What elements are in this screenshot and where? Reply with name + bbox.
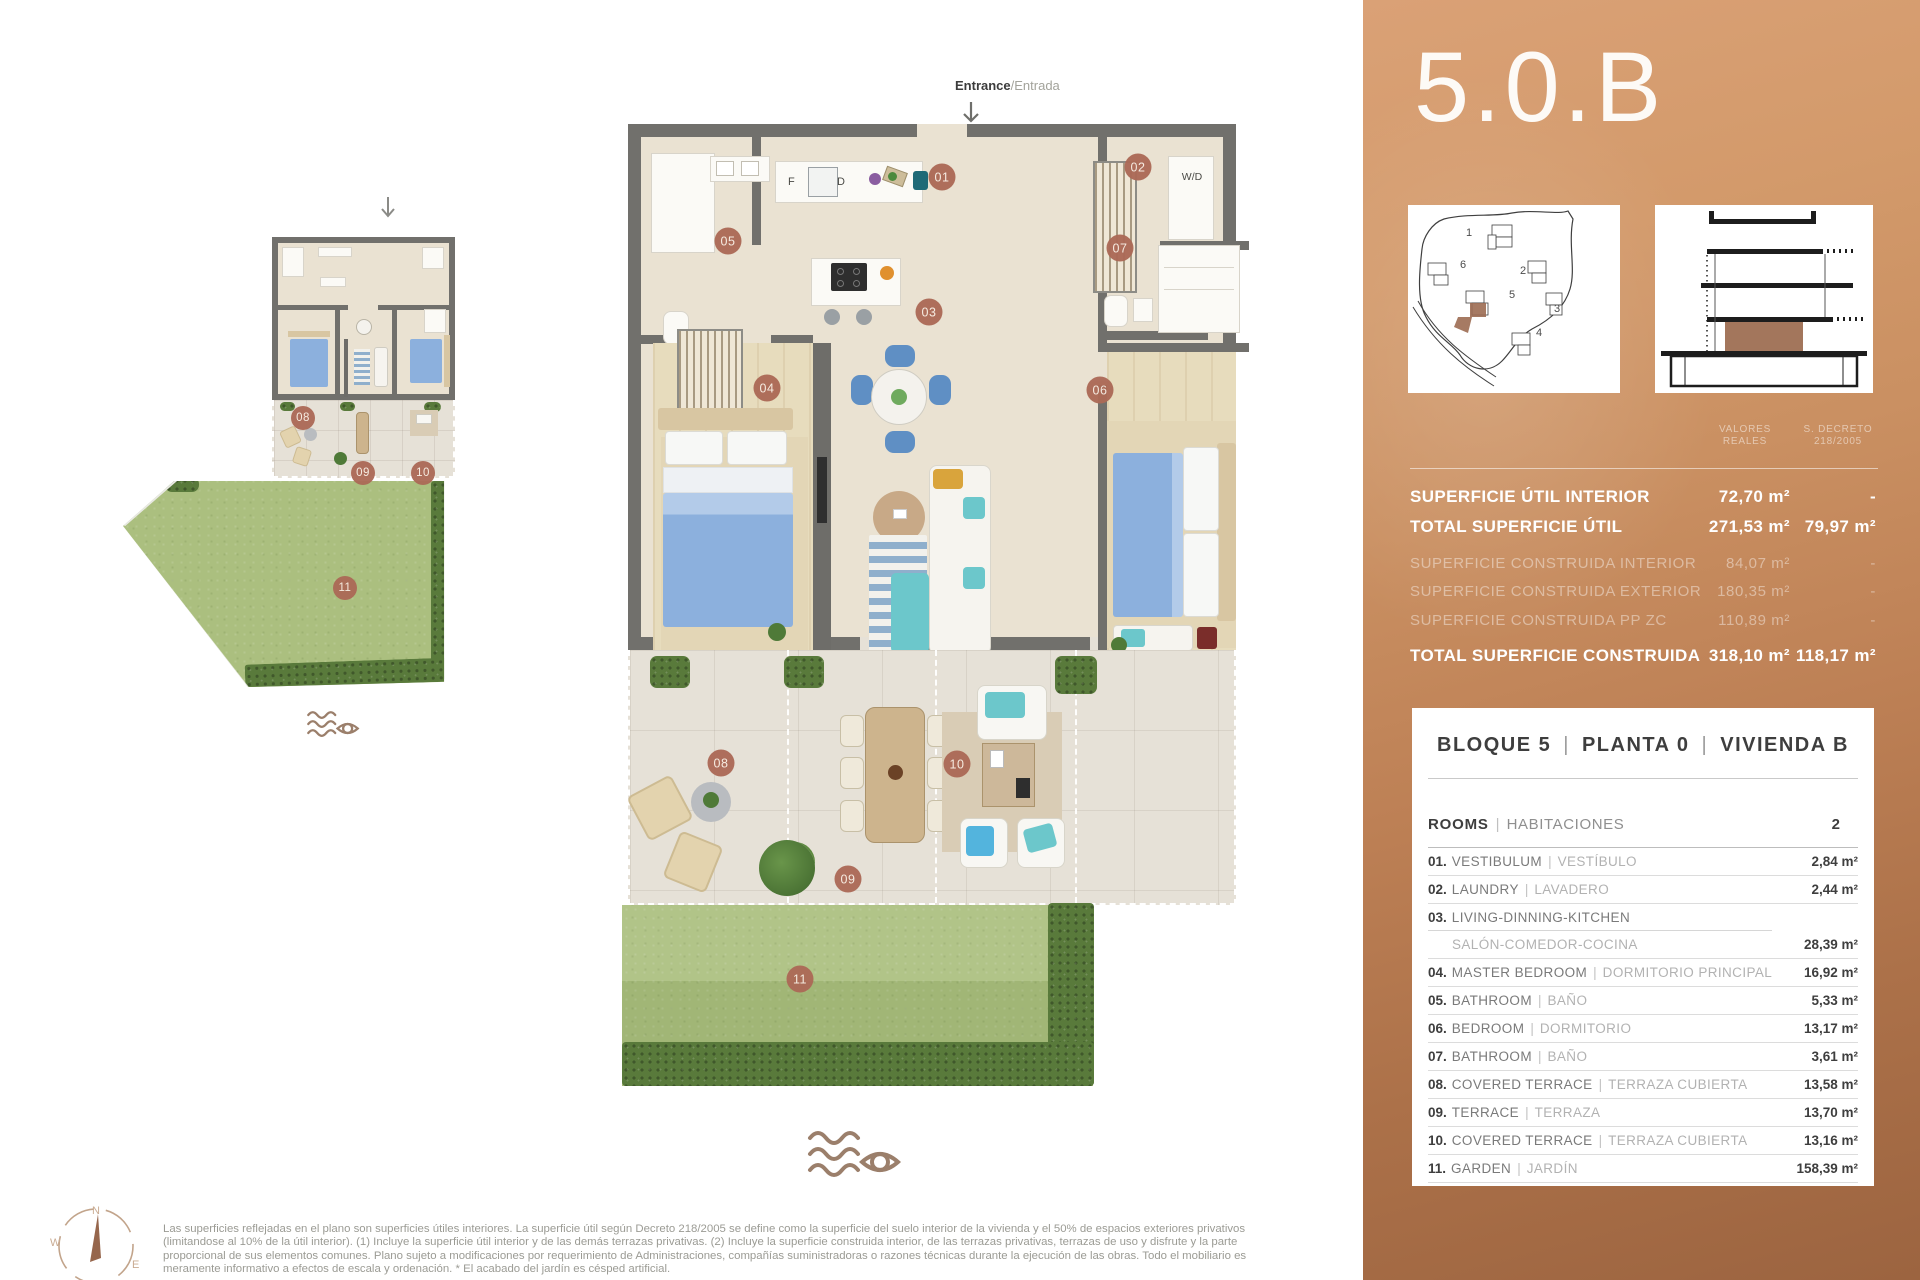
bed-headboard <box>1217 443 1236 621</box>
room-row-06: 06.BEDROOM|DORMITORIO 13,17 m² <box>1428 1015 1858 1043</box>
mini-garden-hedge-bottom <box>245 657 458 688</box>
main-floor-plan: F D W/D <box>628 124 1236 650</box>
room-num: 02. <box>1428 882 1447 897</box>
row-label: SUPERFICIE CONSTRUIDA PP ZC <box>1410 612 1667 629</box>
unit-card-header: BLOQUE 5|PLANTA 0|VIVIENDA B <box>1412 734 1874 757</box>
tv-screen <box>817 457 827 523</box>
bed-sheet <box>663 467 793 493</box>
room-num: 03. <box>1428 910 1447 925</box>
rooms-label-en: ROOMS <box>1428 816 1489 833</box>
site-plan-number-6: 6 <box>1460 259 1466 271</box>
kitchen-sink <box>808 167 838 197</box>
table-row: TOTAL SUPERFICIE ÚTIL 271,53 m² 79,97 m² <box>1410 517 1878 541</box>
mini-side-table <box>304 428 317 441</box>
room-name-es: VESTÍBULO <box>1558 854 1637 869</box>
compass-n: N <box>92 1205 100 1217</box>
row-value-decreto: 79,97 m² <box>1776 517 1876 537</box>
room-name-es: SALÓN-COMEDOR-COCINA <box>1452 937 1638 952</box>
table-bowl <box>888 765 903 780</box>
room-area: 13,70 m² <box>1804 1099 1858 1126</box>
right-panel: 5.0.B 1 2 3 4 5 <box>1363 0 1920 1280</box>
row-value-real: 84,07 m² <box>1660 555 1790 572</box>
room-num: 10. <box>1428 1133 1447 1148</box>
bed-pillow <box>727 431 787 465</box>
room-num: 06. <box>1428 1021 1447 1036</box>
room-row-09: 09.TERRACE|TERRAZA 13,70 m² <box>1428 1099 1858 1127</box>
kettle <box>913 171 928 190</box>
room-num: 01. <box>1428 854 1447 869</box>
room-row-05: 05.BATHROOM|BAÑO 5,33 m² <box>1428 987 1858 1015</box>
burner <box>853 280 860 287</box>
toilet <box>1104 295 1128 327</box>
site-plan-number-3: 3 <box>1554 303 1560 315</box>
mini-garden-hedge-right <box>431 481 453 679</box>
dining-chair <box>885 345 915 367</box>
room-row-01: 01.VESTIBULUM|VESTÍBULO 2,84 m² <box>1428 848 1858 876</box>
cushion <box>966 826 994 856</box>
entrance-opening <box>917 124 967 137</box>
dining-chair <box>929 375 951 405</box>
garden-path-edge <box>121 526 249 689</box>
room-area: 28,39 m² <box>1804 931 1858 958</box>
sink-bowl <box>741 161 759 176</box>
bed-pillow <box>665 431 723 465</box>
washer-dryer-label: W/D <box>1172 171 1212 183</box>
col-header-line: S. DECRETO <box>1788 424 1888 436</box>
row-value-decreto: 118,17 m² <box>1776 646 1876 666</box>
site-plan-box: 1 2 3 4 5 6 <box>1408 205 1620 393</box>
kitchen-item <box>869 173 881 185</box>
room-name-es: DORMITORIO PRINCIPAL <box>1603 965 1773 980</box>
magazine <box>893 509 907 519</box>
plant <box>703 792 719 808</box>
rooms-list-header: ROOMS|HABITACIONES 2 <box>1428 816 1858 848</box>
room-num: 05. <box>1428 993 1447 1008</box>
wall <box>1098 385 1107 663</box>
row-label: TOTAL SUPERFICIE ÚTIL <box>1410 517 1622 537</box>
terrace-area <box>628 650 1236 905</box>
table-centerpiece <box>891 389 907 405</box>
cooktop <box>831 263 867 291</box>
row-value-decreto: - <box>1776 487 1876 507</box>
washer-dryer <box>1168 156 1214 240</box>
row-value-real: 180,35 m² <box>1660 583 1790 600</box>
room-row-03: 03.LIVING-DINNING-KITCHEN SALÓN-COMEDOR-… <box>1428 904 1858 959</box>
dining-chair <box>851 375 873 405</box>
mini-sofa <box>374 347 388 387</box>
kitchen-item <box>888 172 897 181</box>
room-row-11: 11.GARDEN|JARDÍN 158,39 m² <box>1428 1155 1858 1183</box>
brochure-page: Entrance/Entrada <box>0 0 1920 1280</box>
room-name-es: TERRAZA CUBIERTA <box>1608 1133 1747 1148</box>
entrance-label-es: /Entrada <box>1011 78 1060 93</box>
site-plan-number-5: 5 <box>1509 289 1515 301</box>
disclaimer-line: proporcional de sus elementos comunes. P… <box>163 1250 1353 1263</box>
room-name-en: BEDROOM <box>1452 1021 1525 1036</box>
mini-rug <box>354 349 370 385</box>
mini-bed <box>410 339 442 383</box>
louvre-closet <box>1093 161 1137 293</box>
cushion <box>963 567 985 589</box>
row-value-decreto: - <box>1776 555 1876 572</box>
section-drawing <box>1655 205 1873 393</box>
compass-icon: N W E S <box>48 1198 148 1280</box>
disclaimer-line: (limitandose al 10% de la útil interior)… <box>163 1236 1353 1249</box>
chair <box>840 800 864 832</box>
chaise-lounger <box>891 573 929 653</box>
cushion <box>963 497 985 519</box>
room-row-08: 08.COVERED TERRACE|TERRAZA CUBIERTA 13,5… <box>1428 1071 1858 1099</box>
unit-title: 5.0.B <box>1414 30 1665 144</box>
mini-garden <box>123 477 455 690</box>
room-row-04: 04.MASTER BEDROOM|DORMITORIO PRINCIPAL 1… <box>1428 959 1858 987</box>
sofa <box>929 465 991 655</box>
mini-outdoor-sofa <box>416 414 432 424</box>
vivienda-label: VIVIENDA B <box>1720 734 1849 756</box>
room-area: 16,92 m² <box>1804 959 1858 986</box>
room-name-es: TERRAZA <box>1535 1105 1601 1120</box>
room-name-es: BAÑO <box>1548 993 1588 1008</box>
mini-wall <box>335 309 340 400</box>
table-row: SUPERFICIE ÚTIL INTERIOR 72,70 m² - <box>1410 487 1878 511</box>
mini-fixture <box>282 247 304 277</box>
disclaimer-line: meramente informativo a efectos de escal… <box>163 1263 1353 1276</box>
rooms-list: ROOMS|HABITACIONES 2 01.VESTIBULUM|VESTÍ… <box>1428 816 1858 1183</box>
table-col-header-1: VALORES REALES <box>1695 424 1795 448</box>
hedge-bottom <box>622 1042 1094 1086</box>
garden-path-edge <box>123 478 178 526</box>
wall <box>752 137 761 245</box>
room-name-es: BAÑO <box>1548 1049 1588 1064</box>
row-value-real: 318,10 m² <box>1660 646 1790 666</box>
row-value-decreto: - <box>1776 612 1876 629</box>
chair <box>840 757 864 789</box>
separator: | <box>1690 734 1721 756</box>
bed-pillow <box>1183 533 1219 617</box>
potted-plant <box>759 840 815 896</box>
tray <box>1016 778 1030 798</box>
mini-floor-plan <box>272 237 455 400</box>
room-name-en: BATHROOM <box>1452 1049 1532 1064</box>
room-area: 158,39 m² <box>1796 1155 1858 1182</box>
planta-label: PLANTA 0 <box>1582 734 1690 756</box>
dishwasher-label: D <box>837 176 845 188</box>
mini-dining-table <box>356 319 372 335</box>
stool <box>824 309 840 325</box>
fruit-bowl <box>880 266 894 280</box>
room-num: 04. <box>1428 965 1447 980</box>
wall <box>1098 343 1249 352</box>
room-num: 08. <box>1428 1077 1447 1092</box>
table-row: SUPERFICIE CONSTRUIDA PP ZC 110,89 m² - <box>1410 612 1878 636</box>
room-area: 2,84 m² <box>1811 848 1858 875</box>
table-rule <box>1410 468 1878 469</box>
row-label: TOTAL SUPERFICIE CONSTRUIDA <box>1410 646 1700 666</box>
room-area: 13,16 m² <box>1804 1127 1858 1154</box>
card-rule <box>1428 778 1858 779</box>
room-name-en: COVERED TERRACE <box>1452 1133 1593 1148</box>
compass-e: E <box>132 1259 139 1271</box>
row-value-real: 271,53 m² <box>1660 517 1790 537</box>
mini-dining-table <box>356 412 369 454</box>
site-plan-number-1: 1 <box>1466 227 1472 239</box>
compass-w: W <box>50 1237 61 1249</box>
mini-wall <box>344 339 348 397</box>
room-name-en: LAUNDRY <box>1452 882 1519 897</box>
mini-hedge-tuft <box>280 402 295 411</box>
mini-fixture <box>422 247 444 269</box>
dining-chair <box>885 431 915 453</box>
room-name-es: JARDÍN <box>1527 1161 1578 1176</box>
bed-pillow <box>1183 447 1219 531</box>
room-area: 13,17 m² <box>1804 1015 1858 1042</box>
room-name-en: COVERED TERRACE <box>1452 1077 1593 1092</box>
col-header-line: VALORES <box>1695 424 1795 436</box>
mini-hedge-tuft <box>340 402 355 411</box>
entrance-label-en: Entrance <box>955 78 1011 93</box>
bag <box>1197 627 1217 649</box>
mini-bed-headboard <box>288 331 330 337</box>
hedge-tuft <box>650 656 690 688</box>
separator: | <box>1551 734 1582 756</box>
bed-headboard <box>658 408 793 430</box>
room-num: 07. <box>1428 1049 1447 1064</box>
row-value-real: 110,89 m² <box>1660 612 1790 629</box>
room-name-es: TERRAZA CUBIERTA <box>1608 1077 1747 1092</box>
sink <box>1133 298 1153 322</box>
room-name-es: DORMITORIO <box>1540 1021 1632 1036</box>
col-header-line: REALES <box>1695 436 1795 448</box>
room-row-02: 02.LAUNDRY|LAVADERO 2,44 m² <box>1428 876 1858 904</box>
entrance-label: Entrance/Entrada <box>955 78 1060 93</box>
table-row: TOTAL SUPERFICIE CONSTRUIDA 318,10 m² 11… <box>1410 646 1878 670</box>
disclaimer-line: Las superficies reflejadas en el plano s… <box>163 1223 1353 1236</box>
bed-duvet <box>1113 453 1183 617</box>
room-name-es: LAVADERO <box>1534 882 1609 897</box>
mini-plant <box>334 452 347 465</box>
site-plan-number-2: 2 <box>1520 265 1526 277</box>
room-name-en: BATHROOM <box>1452 993 1532 1008</box>
col-header-line: 218/2005 <box>1788 436 1888 448</box>
room-num: 09. <box>1428 1105 1447 1120</box>
unit-card: BLOQUE 5|PLANTA 0|VIVIENDA B ROOMS|HABIT… <box>1412 708 1874 1186</box>
burner <box>853 268 860 275</box>
burner <box>837 280 844 287</box>
rooms-count: 2 <box>1832 816 1840 833</box>
room-area: 2,44 m² <box>1811 876 1858 903</box>
disclaimer-text: Las superficies reflejadas en el plano s… <box>163 1223 1353 1277</box>
mini-fixture <box>424 309 446 333</box>
room-area: 3,61 m² <box>1811 1043 1858 1070</box>
mini-lounge-chair <box>279 425 302 448</box>
shower <box>651 153 715 253</box>
plant <box>768 623 786 641</box>
room-name-en: LIVING-DINNING-KITCHEN <box>1452 910 1630 925</box>
waves-eye-logo-small <box>306 706 360 742</box>
closet-shelf <box>1164 289 1234 290</box>
room-row-07: 07.BATHROOM|BAÑO 3,61 m² <box>1428 1043 1858 1071</box>
mini-terrace <box>272 400 455 478</box>
mini-fixture <box>318 247 352 257</box>
mini-wall <box>392 309 397 400</box>
closet-shelf <box>1164 267 1234 268</box>
fridge-label: F <box>788 176 795 188</box>
row-label: SUPERFICIE CONSTRUIDA EXTERIOR <box>1410 583 1701 600</box>
bloque-label: BLOQUE 5 <box>1437 734 1551 756</box>
mini-wall <box>278 305 348 310</box>
burner <box>837 268 844 275</box>
hedge-tuft <box>1055 656 1097 694</box>
mini-fixture <box>320 277 346 287</box>
mini-garden-hedge-tuft <box>165 477 199 492</box>
bed-duvet <box>663 493 793 627</box>
mini-bed-headboard <box>444 335 450 387</box>
rooms-label-es: HABITACIONES <box>1507 816 1625 833</box>
row-value-decreto: - <box>1776 583 1876 600</box>
throw-blanket <box>933 469 963 489</box>
waves-eye-logo <box>806 1124 902 1184</box>
room-area: 13,58 m² <box>1804 1071 1858 1098</box>
table-row: SUPERFICIE CONSTRUIDA INTERIOR 84,07 m² … <box>1410 555 1878 579</box>
chair <box>840 715 864 747</box>
section-box <box>1655 205 1873 393</box>
table-col-header-2: S. DECRETO 218/2005 <box>1788 424 1888 448</box>
room-name-en: VESTIBULUM <box>1452 854 1542 869</box>
site-plan-number-4: 4 <box>1536 327 1542 339</box>
sink-bowl <box>716 161 734 176</box>
room-row-10: 10.COVERED TERRACE|TERRAZA CUBIERTA 13,1… <box>1428 1127 1858 1155</box>
row-label: SUPERFICIE ÚTIL INTERIOR <box>1410 487 1650 507</box>
lounge-chair <box>662 830 723 894</box>
hedge-tuft <box>784 656 824 688</box>
room-name-en: MASTER BEDROOM <box>1452 965 1587 980</box>
room-area: 5,33 m² <box>1811 987 1858 1014</box>
room-num: 11. <box>1428 1161 1446 1176</box>
mini-lounge-chair <box>292 446 312 467</box>
separator: | <box>1489 816 1507 833</box>
table-row: SUPERFICIE CONSTRUIDA EXTERIOR 180,35 m²… <box>1410 583 1878 607</box>
room-name-en: TERRACE <box>1452 1105 1519 1120</box>
room-name-en: GARDEN <box>1451 1161 1511 1176</box>
row-label: SUPERFICIE CONSTRUIDA INTERIOR <box>1410 555 1696 572</box>
cushion <box>985 692 1025 718</box>
stool <box>856 309 872 325</box>
row-value-real: 72,70 m² <box>1660 487 1790 507</box>
mini-bed <box>290 339 328 387</box>
mini-plan-arrow-icon <box>378 196 398 222</box>
book <box>990 750 1004 768</box>
